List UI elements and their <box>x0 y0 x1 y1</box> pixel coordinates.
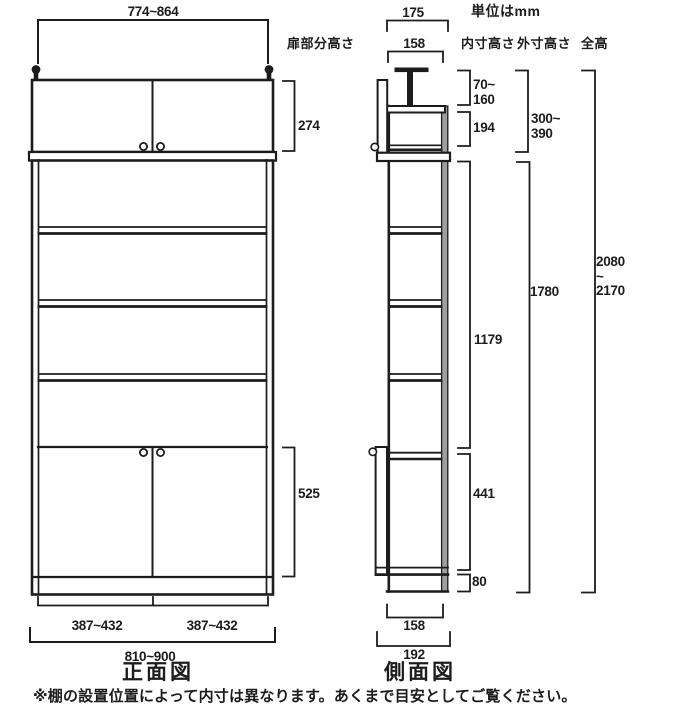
total-height-column-header: 全高 <box>581 37 608 51</box>
upper-outer-height-value: 300~ 390 <box>531 112 560 141</box>
side-upper-door <box>378 80 388 155</box>
inner-top-gap-bracket <box>458 71 470 106</box>
lower-door-handle-left-icon <box>140 449 147 456</box>
lower-inner-height-value: 441 <box>473 487 495 501</box>
side-upper-top-board <box>387 106 445 113</box>
side-bottom-inner-depth-value: 158 <box>403 619 425 633</box>
open-inner-height-value: 1179 <box>474 333 502 347</box>
footer-note: ※棚の設置位置によって内寸は異なります。あくまで目安としてご覧ください。 <box>33 690 577 704</box>
inner-base-bracket <box>458 575 470 592</box>
side-view-drawing <box>369 21 450 647</box>
inner-upper-bracket <box>458 112 470 146</box>
top-gap-height-value: 70~ 160 <box>473 78 495 107</box>
upper-door-height-bracket <box>283 81 295 151</box>
diagram-linework <box>0 0 700 717</box>
furniture-dimension-diagram: 774~864 扉部分高さ 274 525 387~432 387~432 81… <box>0 0 700 717</box>
outer-upper-bracket <box>516 71 528 153</box>
tension-top-plate-icon <box>395 68 429 108</box>
lower-door-handle-right-icon <box>157 449 164 456</box>
outer-height-column-header: 外寸高さ <box>517 37 571 51</box>
side-lower-door-knob-icon <box>369 448 376 455</box>
inner-open-bracket <box>458 162 470 449</box>
side-bottom-inner-depth-bracket <box>387 605 443 618</box>
lower-door-height-bracket <box>283 448 295 577</box>
door-section-height-label: 扉部分高さ <box>287 37 355 51</box>
front-view-title: 正面図 <box>122 661 194 685</box>
base-height-value: 80 <box>472 575 486 589</box>
side-total-depth-value: 192 <box>403 648 425 662</box>
side-top-inner-depth-value: 158 <box>403 37 425 51</box>
upper-door-height-value: 274 <box>298 119 320 133</box>
side-lower-door <box>376 447 387 575</box>
side-top-depth-bracket <box>387 21 448 32</box>
tension-knob-left-icon <box>32 65 41 81</box>
outer-lower-bracket <box>517 162 530 593</box>
inner-height-column-header: 内寸高さ <box>461 37 515 51</box>
side-top-depth-value: 175 <box>402 6 424 20</box>
front-top-width-label: 774~864 <box>128 5 179 19</box>
bottom-width-left-value: 387~432 <box>72 619 123 633</box>
side-upper-door-knob-icon <box>371 143 378 150</box>
front-view-drawing <box>29 20 295 642</box>
upper-door-handle-right-icon <box>157 143 164 150</box>
bottom-width-right-value: 387~432 <box>187 619 238 633</box>
front-total-width-bracket <box>30 628 275 642</box>
front-top-width-bracket <box>38 20 268 63</box>
inner-lower-bracket <box>458 454 470 570</box>
tension-knob-right-icon <box>265 65 274 81</box>
upper-door-handle-left-icon <box>140 143 147 150</box>
side-top-inner-depth-bracket <box>388 52 443 63</box>
side-main-top-board <box>377 153 450 161</box>
front-half-width-bracket <box>38 597 268 606</box>
side-total-depth-bracket <box>377 632 450 646</box>
lower-outer-height-value: 1780 <box>530 285 559 299</box>
lower-door-height-value: 525 <box>298 487 320 501</box>
upper-inner-height-value: 194 <box>473 121 495 135</box>
side-view-title: 側面図 <box>384 661 456 685</box>
total-height-value: 2080 ~ 2170 <box>596 255 625 299</box>
unit-note: 単位はmm <box>471 4 540 18</box>
side-shelves-bottom-edges <box>390 234 441 381</box>
side-shelves-top-edges <box>390 227 441 374</box>
total-height-bracket <box>582 71 595 593</box>
back-panel <box>442 106 448 592</box>
